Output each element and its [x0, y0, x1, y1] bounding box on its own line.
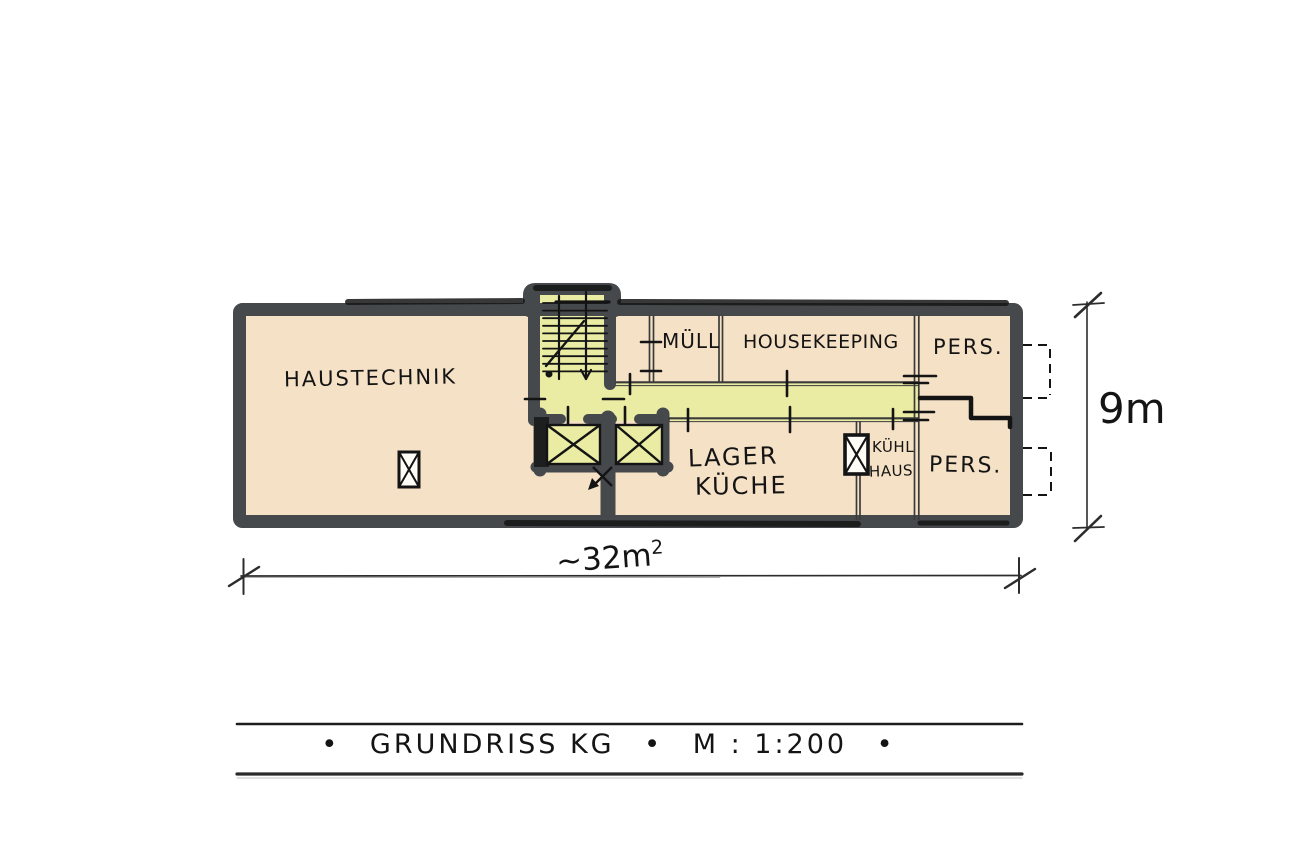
floor-plan-sheet: HAUSTECHNIK MÜLL HOUSEKEEPING PERS. LAGE… — [0, 0, 1300, 866]
column-icon — [399, 452, 419, 487]
elevator-right-icon — [616, 425, 662, 464]
dimension-width-label: ~32m2 — [555, 537, 665, 578]
title-block: • GRUNDRISS KG • M : 1:200 • — [240, 731, 1022, 758]
dimension-width-sup: 2 — [650, 535, 664, 559]
room-label-lager: LAGER — [688, 443, 779, 470]
dimension-width-value: ~32m — [555, 537, 653, 580]
title-bullet-2: • — [644, 729, 663, 760]
room-label-haus: HAUS — [869, 463, 914, 480]
room-label-haustechnik: HAUSTECHNIK — [284, 366, 457, 390]
room-label-pers-upper: PERS. — [933, 337, 1004, 358]
title-bullet-1: • — [321, 729, 340, 760]
room-label-pers-lower: PERS. — [929, 454, 1003, 477]
drawing-title: GRUNDRISS KG — [370, 729, 615, 760]
room-label-kueche: KÜCHE — [695, 473, 788, 499]
elevator-left-icon — [547, 425, 600, 464]
room-label-muell: MÜLL — [662, 331, 720, 351]
title-bullet-3: • — [877, 729, 896, 760]
room-label-kuehl: KÜHL — [872, 440, 914, 455]
room-label-housekeeping: HOUSEKEEPING — [743, 333, 899, 352]
drawing-scale: M : 1:200 — [693, 729, 847, 760]
room-fills — [240, 289, 1016, 521]
dimension-height-label: 9m — [1098, 388, 1166, 430]
dashed-projection-lines — [1023, 345, 1053, 495]
cooling-unit-icon — [845, 435, 868, 474]
